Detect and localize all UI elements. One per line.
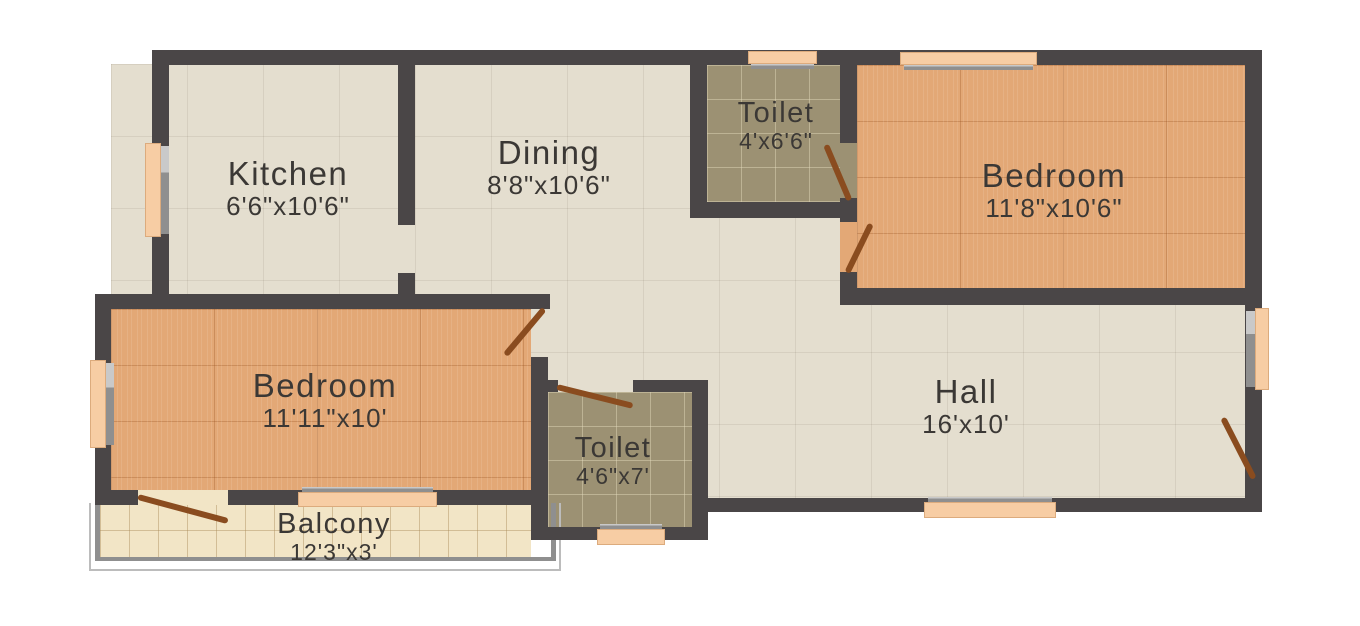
- label-bedroom-right: Bedroom 11'8"x10'6": [982, 158, 1126, 222]
- bedroom-right-name: Bedroom: [982, 158, 1126, 194]
- hall-name: Hall: [922, 374, 1010, 410]
- dining-dims: 8'8"x10'6": [487, 171, 611, 199]
- floor-plan: Kitchen 6'6"x10'6" Dining 8'8"x10'6" Toi…: [0, 0, 1360, 626]
- label-balcony: Balcony 12'3"x3': [277, 509, 391, 565]
- balcony-name: Balcony: [277, 509, 391, 540]
- wall-top-outer: [152, 50, 1262, 65]
- window-toilet-bottom-sill: [600, 524, 662, 529]
- label-bedroom-left: Bedroom 11'11"x10': [253, 368, 397, 432]
- window-bedroom-right-icon: [900, 52, 1037, 65]
- wall-bedroom-left-bottom-a: [95, 490, 138, 505]
- toilet-top-dims: 4'x6'6": [738, 129, 815, 154]
- toilet-top-name: Toilet: [738, 98, 815, 129]
- window-kitchen-sill: [161, 146, 169, 234]
- wall-toilet-bottom-right: [692, 380, 708, 540]
- label-toilet-top: Toilet 4'x6'6": [738, 98, 815, 154]
- window-toilet-bottom-icon: [597, 529, 665, 545]
- kitchen-dims: 6'6"x10'6": [226, 192, 350, 220]
- window-hall-bottom-sill: [928, 497, 1052, 502]
- dining-name: Dining: [487, 135, 611, 171]
- hall-dims: 16'x10': [922, 410, 1010, 438]
- window-bedroom-left-icon: [90, 360, 106, 448]
- wall-bedroom-right-left-c: [840, 272, 857, 288]
- wall-right-outer: [1245, 50, 1262, 512]
- window-kitchen-icon: [145, 143, 161, 237]
- toilet-bottom-name: Toilet: [575, 433, 652, 464]
- wall-bedroom-right-bottom: [840, 288, 1262, 305]
- window-bedroom-left-balcony-icon: [298, 492, 437, 507]
- wall-bedroom-right-left-b: [840, 198, 857, 222]
- wall-bedroom-right-left-a: [840, 50, 857, 143]
- bedroom-left-dims: 11'11"x10': [253, 404, 397, 432]
- window-bedroom-left-sill: [106, 363, 114, 445]
- label-dining: Dining 8'8"x10'6": [487, 135, 611, 199]
- label-hall: Hall 16'x10': [922, 374, 1010, 438]
- window-bedroom-left-balcony-sill: [302, 487, 433, 492]
- toilet-bottom-dims: 4'6"x7': [575, 464, 652, 489]
- window-toilet-top-icon: [748, 51, 817, 64]
- window-hall-right-icon: [1255, 308, 1269, 390]
- balcony-dims: 12'3"x3': [277, 540, 391, 565]
- wall-kitchen-dining-stub: [398, 273, 415, 309]
- label-toilet-bottom: Toilet 4'6"x7': [575, 433, 652, 489]
- window-toilet-top-sill: [751, 64, 814, 69]
- balcony-railing-left: [95, 503, 100, 561]
- label-kitchen: Kitchen 6'6"x10'6": [226, 156, 350, 220]
- window-hall-right-sill: [1246, 311, 1255, 387]
- wall-bedroom-left-right: [531, 357, 548, 540]
- wall-bedroom-left-top: [95, 294, 550, 309]
- window-bedroom-right-sill: [904, 65, 1033, 70]
- bedroom-right-dims: 11'8"x10'6": [982, 194, 1126, 222]
- wall-kitchen-dining-partition: [398, 65, 415, 225]
- kitchen-name: Kitchen: [226, 156, 350, 192]
- wall-toilet-top-bottom: [690, 202, 857, 218]
- wall-toilet-top-left: [690, 50, 707, 218]
- bedroom-left-name: Bedroom: [253, 368, 397, 404]
- window-hall-bottom-icon: [924, 502, 1056, 518]
